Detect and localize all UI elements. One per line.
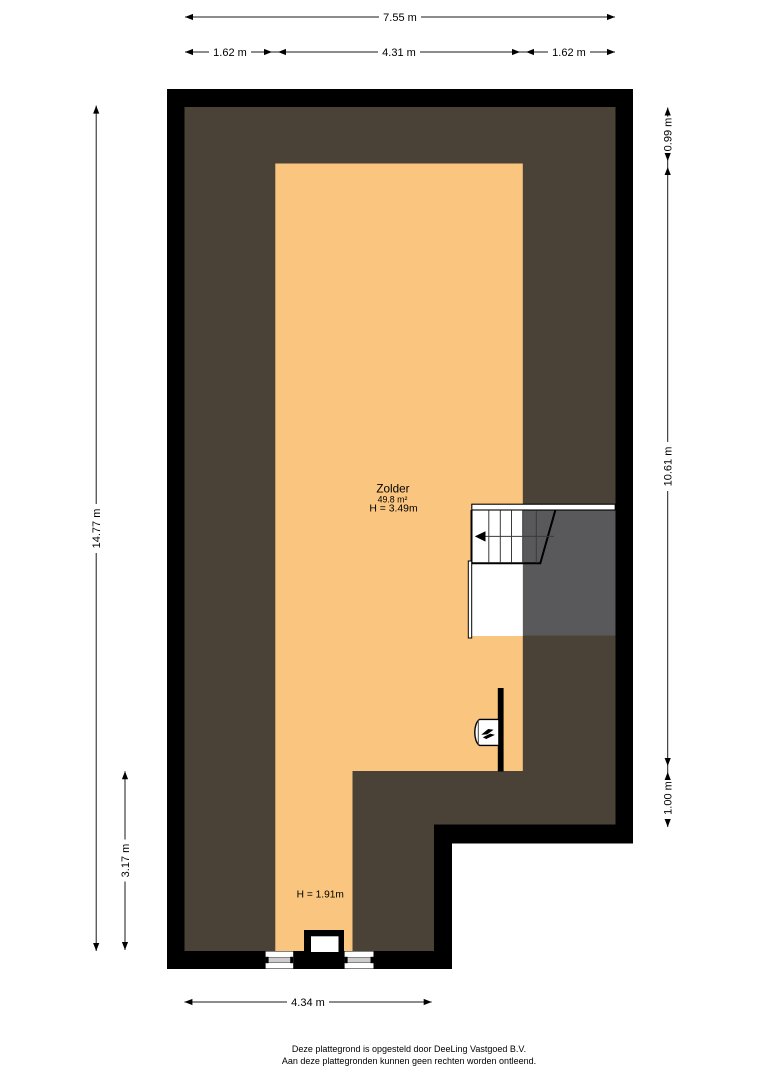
svg-text:Aan deze plattegronden kunnen: Aan deze plattegronden kunnen geen recht… [282,1056,536,1066]
svg-text:4.31 m: 4.31 m [382,47,416,59]
svg-text:H = 1.91m: H = 1.91m [297,890,344,901]
svg-text:7.55 m: 7.55 m [383,12,417,24]
svg-text:1.00 m: 1.00 m [663,781,675,815]
svg-text:3.17 m: 3.17 m [120,844,132,878]
svg-text:H = 3.49m: H = 3.49m [369,503,417,514]
svg-text:1.62 m: 1.62 m [213,47,247,59]
svg-text:10.61 m: 10.61 m [663,447,675,487]
svg-text:1.62 m: 1.62 m [552,47,586,59]
svg-text:0.99 m: 0.99 m [663,118,675,152]
svg-text:14.77 m: 14.77 m [91,509,103,549]
svg-text:Deze plattegrond is opgesteld: Deze plattegrond is opgesteld door DeeLi… [292,1044,526,1054]
svg-text:4.34 m: 4.34 m [291,997,325,1009]
